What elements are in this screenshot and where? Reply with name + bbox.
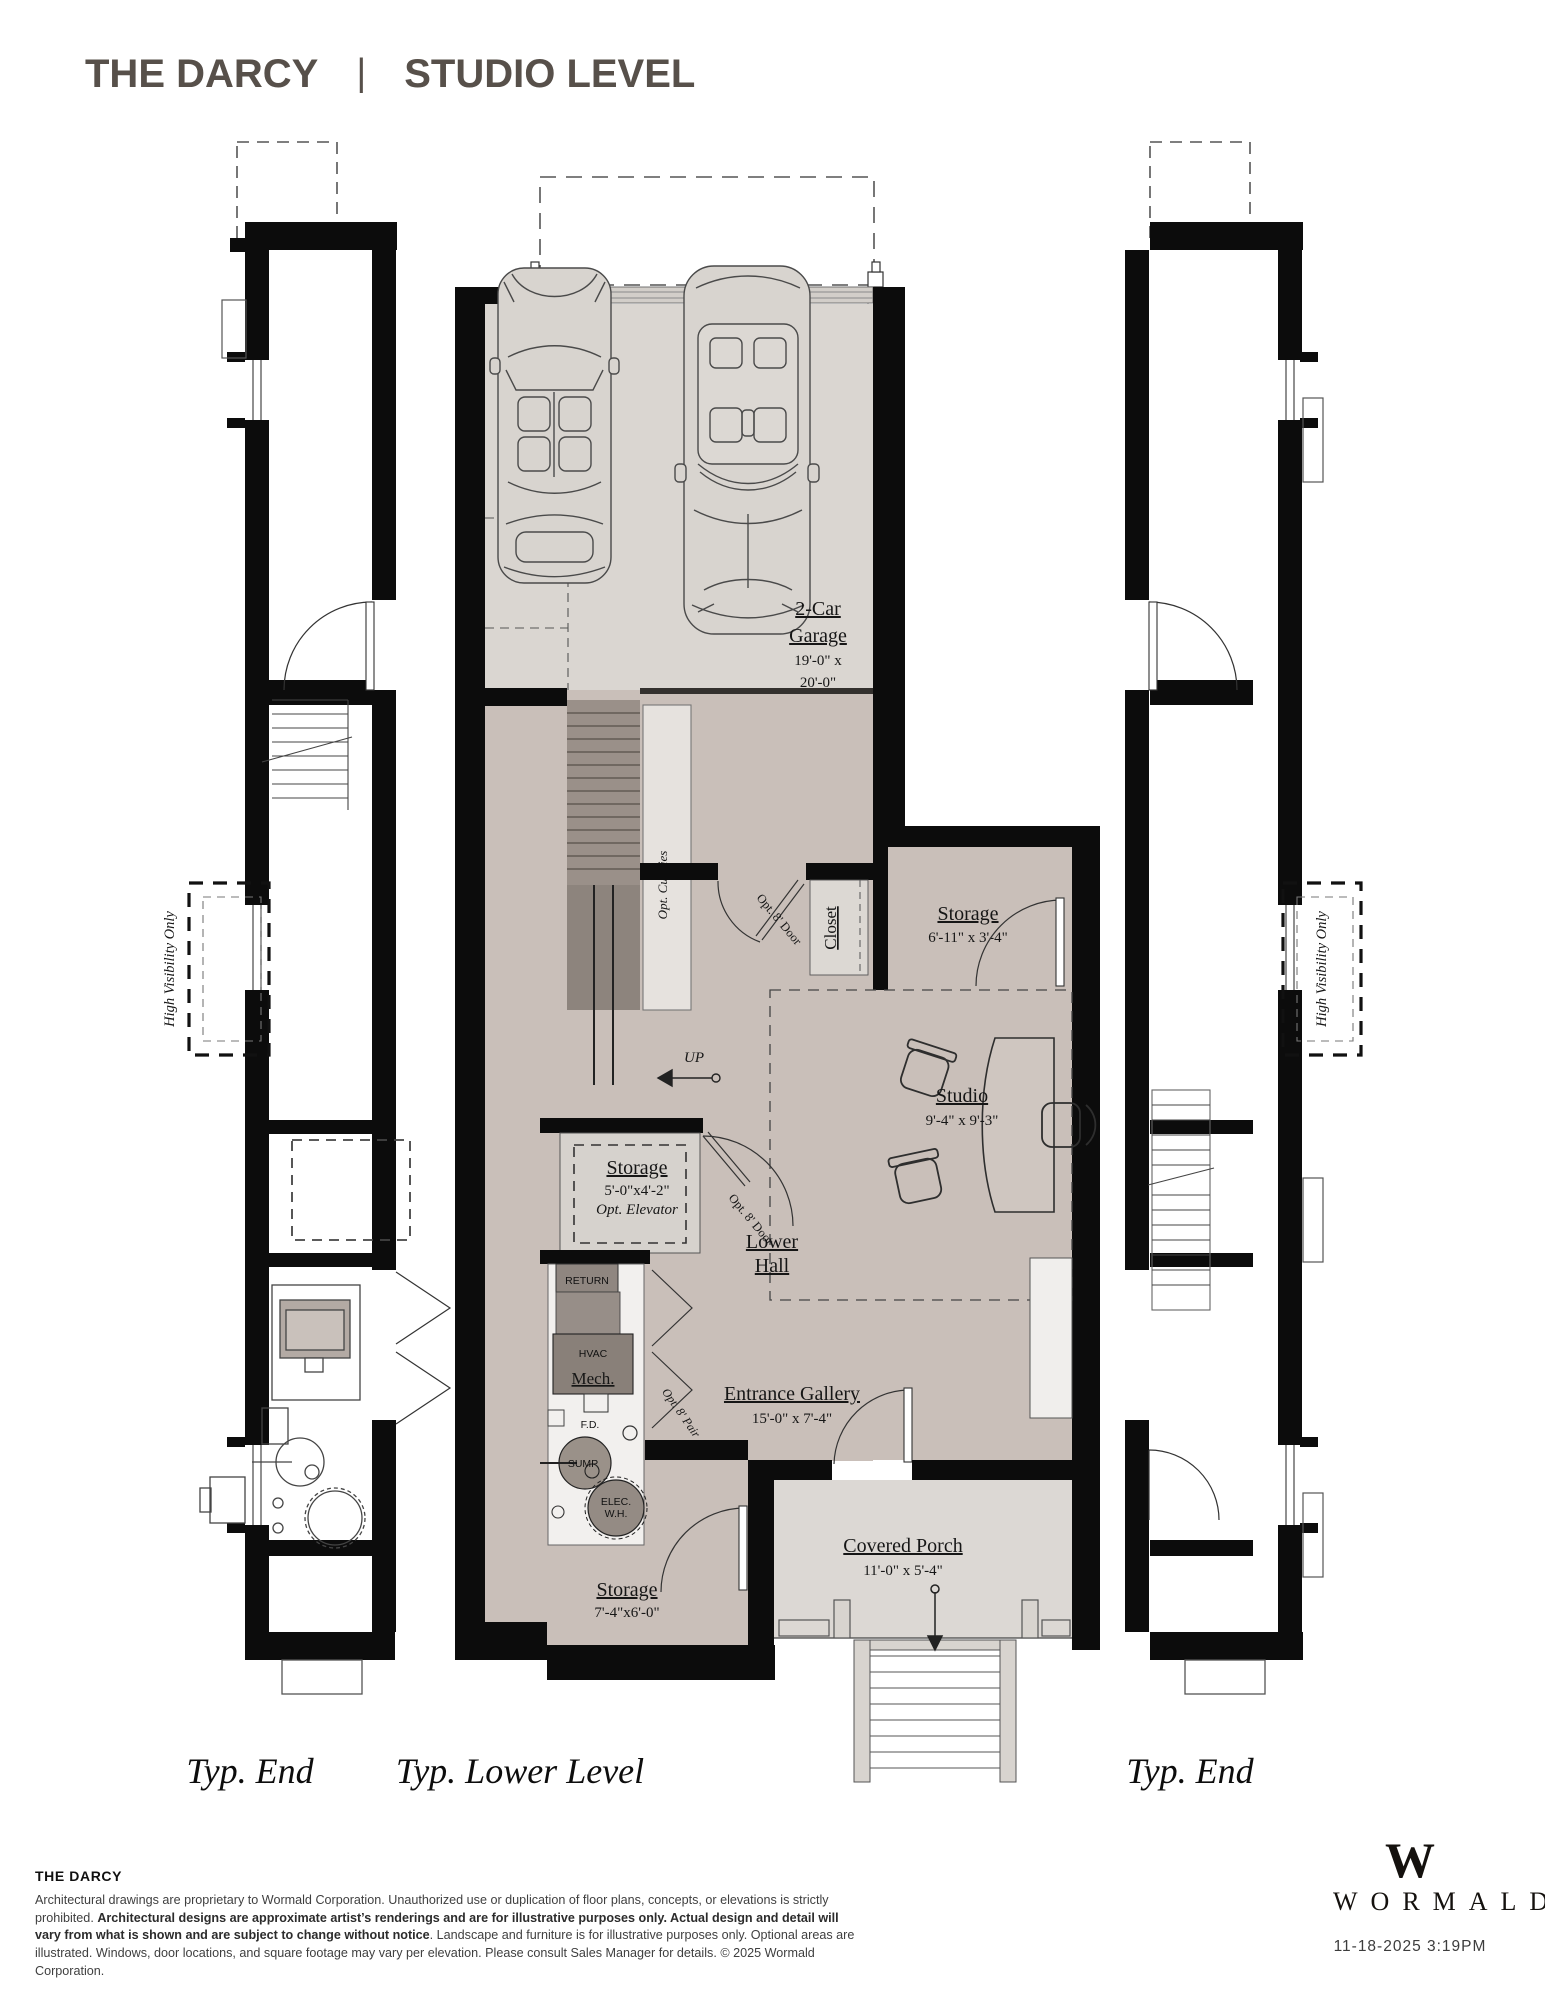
storage-upper-top-wall: [873, 826, 1100, 847]
storage-upper-dims: 6'-11" x 3'-4": [928, 930, 1008, 946]
wormald-logo-initial: W: [1320, 1838, 1500, 1883]
left-unit-doors: [396, 1272, 450, 1424]
lower-hall-label-1: Lower: [746, 1231, 799, 1253]
floor-plan-page: THE DARCY | STUDIO LEVEL: [0, 0, 1545, 2000]
car-convertible: [490, 268, 619, 583]
mech-label: Mech.: [572, 1369, 615, 1388]
high-visibility-label-right: High Visibility Only: [1314, 911, 1330, 1028]
left-equipment: [200, 1285, 365, 1548]
return-label: RETURN: [565, 1275, 609, 1287]
storage-mid-label: Storage: [606, 1157, 667, 1179]
wormald-logo: W WORMALD: [1320, 1838, 1500, 1917]
up-label: UP: [684, 1050, 704, 1066]
fd-label: F.D.: [581, 1419, 600, 1431]
left-top-wall: [245, 222, 397, 250]
entrance-gallery-label: Entrance Gallery: [724, 1383, 860, 1405]
right-end-unit: High Visibility Only: [1125, 142, 1361, 1694]
car-sedan: [675, 266, 819, 634]
covered-porch-dims: 11'-0" x 5'-4": [863, 1563, 943, 1579]
lower-hall-label-2: Hall: [755, 1255, 790, 1277]
garage-label-2: Garage: [789, 625, 847, 647]
section-label-right: Typ. End: [1090, 1750, 1290, 1792]
console-table: [1030, 1258, 1072, 1418]
right-unit-doors: [1149, 1450, 1219, 1520]
covered-porch-label: Covered Porch: [843, 1535, 962, 1557]
storage-lower-label: Storage: [596, 1579, 657, 1601]
storage-upper-label: Storage: [937, 903, 998, 925]
closet-label: Closet: [821, 906, 840, 950]
studio-label: Studio: [936, 1085, 988, 1107]
footer-plan-name: THE DARCY: [35, 1868, 122, 1884]
hvac-label: HVAC: [579, 1348, 608, 1360]
bottom-window-box: [282, 1660, 362, 1694]
floor-plan-drawing: High Visibility Only: [0, 0, 1545, 2000]
opt-elevator-label: Opt. Elevator: [596, 1202, 678, 1218]
right-top-wall: [1150, 222, 1303, 250]
left-bottom-wall: [245, 1632, 395, 1660]
window-ticks: [227, 352, 245, 1533]
center-left-wall: [455, 287, 485, 1660]
right-bottom-wall: [1150, 1632, 1303, 1660]
left-unit-stairs: [262, 700, 352, 810]
entrance-gallery-dims: 15'-0" x 7'-4": [752, 1411, 832, 1427]
footer-disclaimer: Architectural drawings are proprietary t…: [35, 1892, 867, 1980]
section-label-center: Typ. Lower Level: [385, 1750, 655, 1792]
high-visibility-label-left: High Visibility Only: [162, 911, 178, 1028]
wormald-logo-name: WORMALD: [1333, 1887, 1500, 1917]
garage-dims-1: 19'-0" x: [794, 653, 842, 669]
opt-cubbies-label: Opt. Cubbies: [655, 851, 670, 920]
center-right-wall-lower: [1072, 847, 1100, 1460]
storage-lower-dims: 7'-4"x6'-0": [594, 1605, 659, 1621]
wh-label-1: ELEC.: [601, 1496, 631, 1508]
center-unit: 2-Car Garage 19'-0" x 20'-0": [455, 177, 1100, 1782]
left-window-bay: [222, 300, 246, 358]
garage-label-1: 2-Car: [795, 598, 841, 620]
door-arc: [284, 602, 372, 690]
sump-label: SUMP: [568, 1458, 598, 1470]
storage-mid-dims: 5'-0"x4'-2": [604, 1183, 669, 1199]
right-door-arc: [1149, 602, 1237, 690]
center-right-wall-upper: [873, 287, 905, 847]
left-end-unit: High Visibility Only: [162, 142, 450, 1694]
door-leaf: [366, 602, 374, 690]
print-timestamp: 11-18-2025 3:19PM: [1320, 1938, 1500, 1956]
section-label-left: Typ. End: [150, 1750, 350, 1792]
studio-dims: 9'-4" x 9'-3": [926, 1113, 999, 1129]
wh-label-2: W.H.: [605, 1508, 628, 1520]
